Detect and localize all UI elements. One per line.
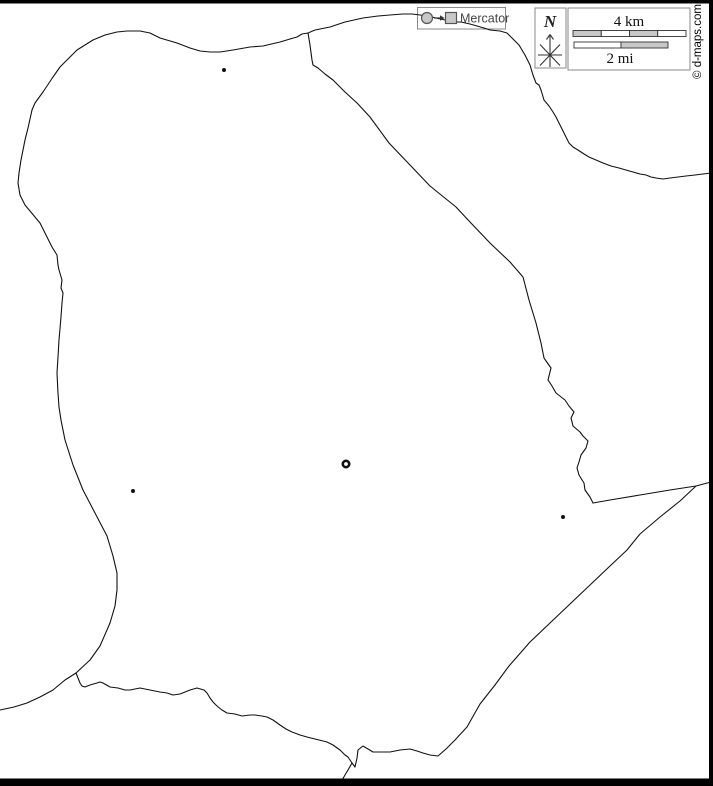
frame-bottom-border bbox=[0, 779, 713, 786]
town-dot-marker bbox=[561, 515, 565, 519]
scale-km-label: 4 km bbox=[614, 14, 645, 30]
capital-ring-marker bbox=[343, 461, 349, 467]
map-background bbox=[0, 0, 713, 786]
projection-label: Mercator bbox=[460, 12, 509, 26]
frame-top-border bbox=[0, 0, 713, 4]
map-page: Mercator N 4 km 2 mi © d-maps.com bbox=[0, 0, 713, 786]
scale-mi-bar bbox=[574, 42, 668, 48]
town-dot-marker bbox=[131, 489, 135, 493]
square-glyph-icon bbox=[446, 13, 457, 24]
north-label: N bbox=[543, 12, 557, 31]
compass-legend: N bbox=[535, 8, 566, 68]
frame-right-border bbox=[709, 0, 713, 786]
scale-legend: 4 km 2 mi bbox=[568, 8, 690, 70]
copyright-text: © d-maps.com bbox=[692, 4, 704, 79]
town-dot-marker bbox=[222, 68, 226, 72]
circle-glyph-icon bbox=[422, 13, 433, 24]
scale-km-bar bbox=[573, 31, 686, 37]
map-canvas: Mercator N 4 km 2 mi © d-maps.com bbox=[0, 0, 713, 786]
scale-mi-label: 2 mi bbox=[606, 51, 633, 67]
